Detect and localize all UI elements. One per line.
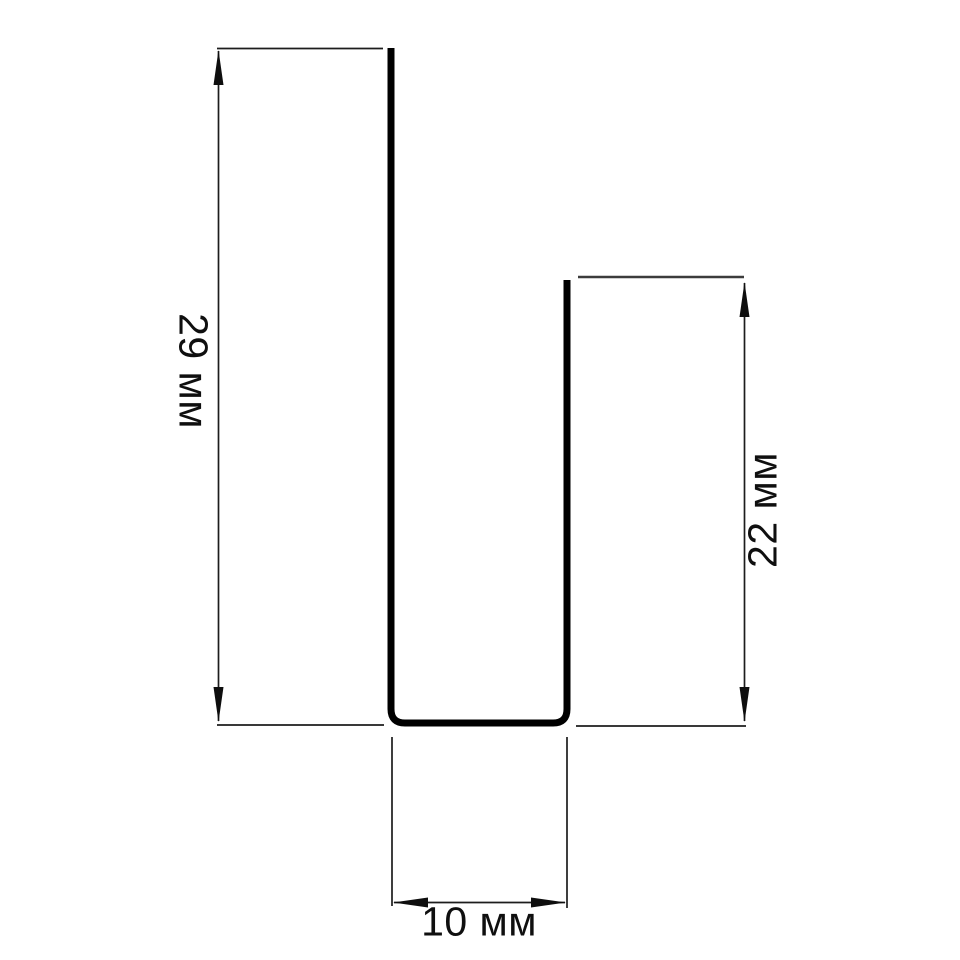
arrowhead-down-left <box>214 687 224 722</box>
drawing-canvas: 29 мм 22 мм 10 мм <box>0 0 960 960</box>
u-profile-outline <box>391 48 567 723</box>
arrowhead-up-left <box>214 50 224 85</box>
dimension-label-left-height: 29 мм <box>173 313 214 429</box>
profile-dimension-drawing <box>0 0 960 960</box>
arrowhead-up-right <box>740 282 750 317</box>
dimension-bottom-width <box>392 737 567 908</box>
dimension-right-height <box>576 277 750 726</box>
dimension-label-bottom-width: 10 мм <box>421 902 537 943</box>
dimension-left-height <box>214 49 385 726</box>
dimension-label-right-height: 22 мм <box>743 452 784 568</box>
arrowhead-down-right <box>740 687 750 722</box>
